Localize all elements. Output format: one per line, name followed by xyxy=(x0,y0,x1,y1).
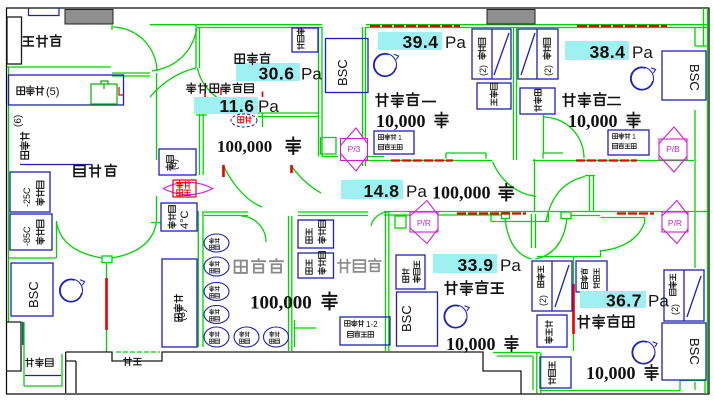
svg-text:Pa: Pa xyxy=(406,182,427,201)
svg-text:Pa: Pa xyxy=(258,97,279,116)
svg-text:39.4: 39.4 xyxy=(402,32,438,52)
svg-text:36.7: 36.7 xyxy=(606,291,642,311)
svg-text:11.6: 11.6 xyxy=(219,96,254,116)
svg-text:10,000: 10,000 xyxy=(376,111,426,131)
svg-text:(4): (4) xyxy=(169,159,179,170)
svg-text:100,000: 100,000 xyxy=(217,137,272,156)
svg-text:Pa: Pa xyxy=(500,256,521,275)
svg-text:30.6: 30.6 xyxy=(258,64,294,84)
svg-text:38.4: 38.4 xyxy=(589,42,625,62)
svg-text:-25C: -25C xyxy=(22,187,32,207)
svg-text:14.8: 14.8 xyxy=(363,181,399,201)
svg-text:1: 1 xyxy=(398,135,402,142)
svg-text:P/B: P/B xyxy=(666,144,680,154)
svg-text:(3): (3) xyxy=(177,309,188,321)
svg-text:1-2: 1-2 xyxy=(366,320,378,329)
svg-text:Pa: Pa xyxy=(445,33,466,52)
svg-text:P/3: P/3 xyxy=(348,144,361,154)
svg-text:(2): (2) xyxy=(478,65,488,76)
svg-text:4°C: 4°C xyxy=(179,210,191,229)
svg-text:BSC: BSC xyxy=(687,338,702,365)
svg-text:10,000: 10,000 xyxy=(586,363,636,383)
svg-text:BSC: BSC xyxy=(335,59,350,86)
svg-text:(5): (5) xyxy=(46,86,59,98)
svg-text:100,000: 100,000 xyxy=(250,293,312,314)
svg-text:100,000: 100,000 xyxy=(432,183,491,203)
svg-text:10,000: 10,000 xyxy=(568,111,618,131)
svg-text:(2): (2) xyxy=(543,65,553,76)
svg-text:P/R: P/R xyxy=(417,218,431,228)
svg-text:P/R: P/R xyxy=(668,218,682,228)
svg-text:33.9: 33.9 xyxy=(457,255,493,275)
svg-text:BSC: BSC xyxy=(26,281,41,308)
svg-text:10,000: 10,000 xyxy=(446,334,496,354)
svg-text:(2): (2) xyxy=(670,304,680,315)
svg-text:(6): (6) xyxy=(13,115,24,127)
svg-text:Pa: Pa xyxy=(301,65,322,84)
svg-text:Pa: Pa xyxy=(648,292,669,311)
svg-text:BSC: BSC xyxy=(687,64,702,91)
svg-text:-85C: -85C xyxy=(22,226,32,246)
svg-text:1: 1 xyxy=(632,134,636,141)
svg-text:Pa: Pa xyxy=(632,43,653,62)
svg-text:BSC: BSC xyxy=(399,305,414,332)
svg-text:(2): (2) xyxy=(538,295,548,306)
